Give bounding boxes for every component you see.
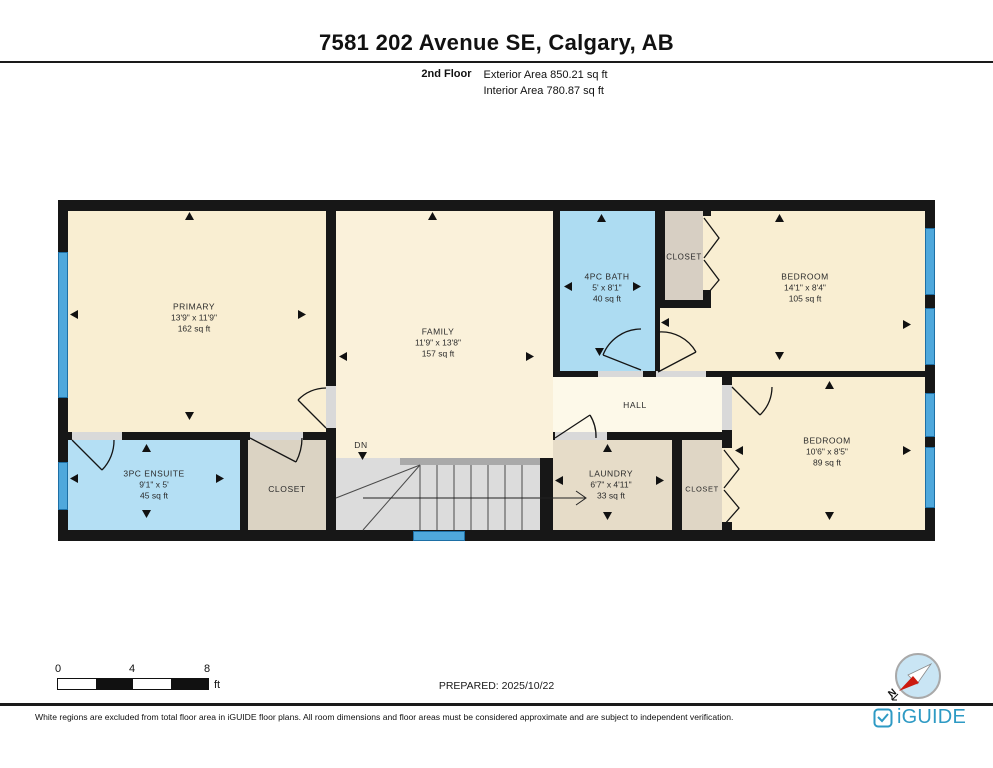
floor-summary: 2nd Floor Exterior Area 850.21 sq ft Int… (0, 67, 993, 99)
door-laundry (555, 415, 596, 438)
floor-name: 2nd Floor (421, 67, 471, 99)
room-label-laundry: LAUNDRY 6'7" x 4'11" 33 sq ft (589, 468, 633, 501)
stairs-dn-label: DN (354, 440, 367, 450)
prepared-date: PREPARED: 2025/10/22 (0, 680, 993, 692)
stair-landing (400, 458, 540, 465)
dimension-arrows (70, 212, 911, 520)
header-divider (0, 61, 993, 63)
room-label-bedroom-top: BEDROOM 14'1" x 8'4" 105 sq ft (781, 271, 828, 304)
door-bedroom-top (658, 332, 696, 372)
footer-divider (0, 703, 993, 706)
room-label-primary: PRIMARY 13'9" x 11'9" 162 sq ft (171, 301, 217, 334)
scale-tick-0: 0 (55, 663, 61, 675)
door-closet-left (250, 438, 302, 462)
iguide-logo-icon (873, 708, 893, 728)
closet-top-label: CLOSET (666, 253, 702, 262)
floor-plan: PRIMARY 13'9" x 11'9" 162 sq ft FAMILY 1… (58, 200, 935, 541)
room-label-bath: 4PC BATH 5' x 8'1" 40 sq ft (585, 271, 630, 304)
page-title: 7581 202 Avenue SE, Calgary, AB (0, 30, 993, 56)
iguide-brand: iGUIDE (873, 706, 966, 729)
plan-symbol-overlay (58, 200, 935, 541)
stair-details (336, 458, 586, 530)
bifold-closet-top (704, 218, 719, 298)
closet-left-label: CLOSET (268, 484, 306, 494)
scale-tick-4: 4 (129, 663, 135, 675)
iguide-brand-text: iGUIDE (897, 706, 966, 729)
scale-tick-8: 8 (204, 663, 210, 675)
hall-label: HALL (623, 400, 647, 410)
closet-bottom-label: CLOSET (685, 485, 719, 494)
bifold-closet-bottom (724, 450, 739, 525)
room-label-bedroom-bottom: BEDROOM 10'6" x 8'5" 89 sq ft (803, 435, 850, 468)
door-bedroom-bottom (732, 387, 772, 415)
room-label-ensuite: 3PC ENSUITE 9'1" x 5' 45 sq ft (123, 468, 184, 501)
door-ensuite (72, 440, 114, 470)
interior-area: Interior Area 780.87 sq ft (483, 83, 607, 99)
stairs-down-arrow (358, 452, 367, 460)
room-label-family: FAMILY 11'9" x 13'8" 157 sq ft (415, 326, 461, 359)
door-bath (603, 329, 641, 370)
winder-line (336, 465, 420, 498)
exterior-area: Exterior Area 850.21 sq ft (483, 67, 607, 83)
footer-disclaimer: White regions are excluded from total fl… (35, 712, 795, 722)
door-primary (298, 388, 326, 428)
